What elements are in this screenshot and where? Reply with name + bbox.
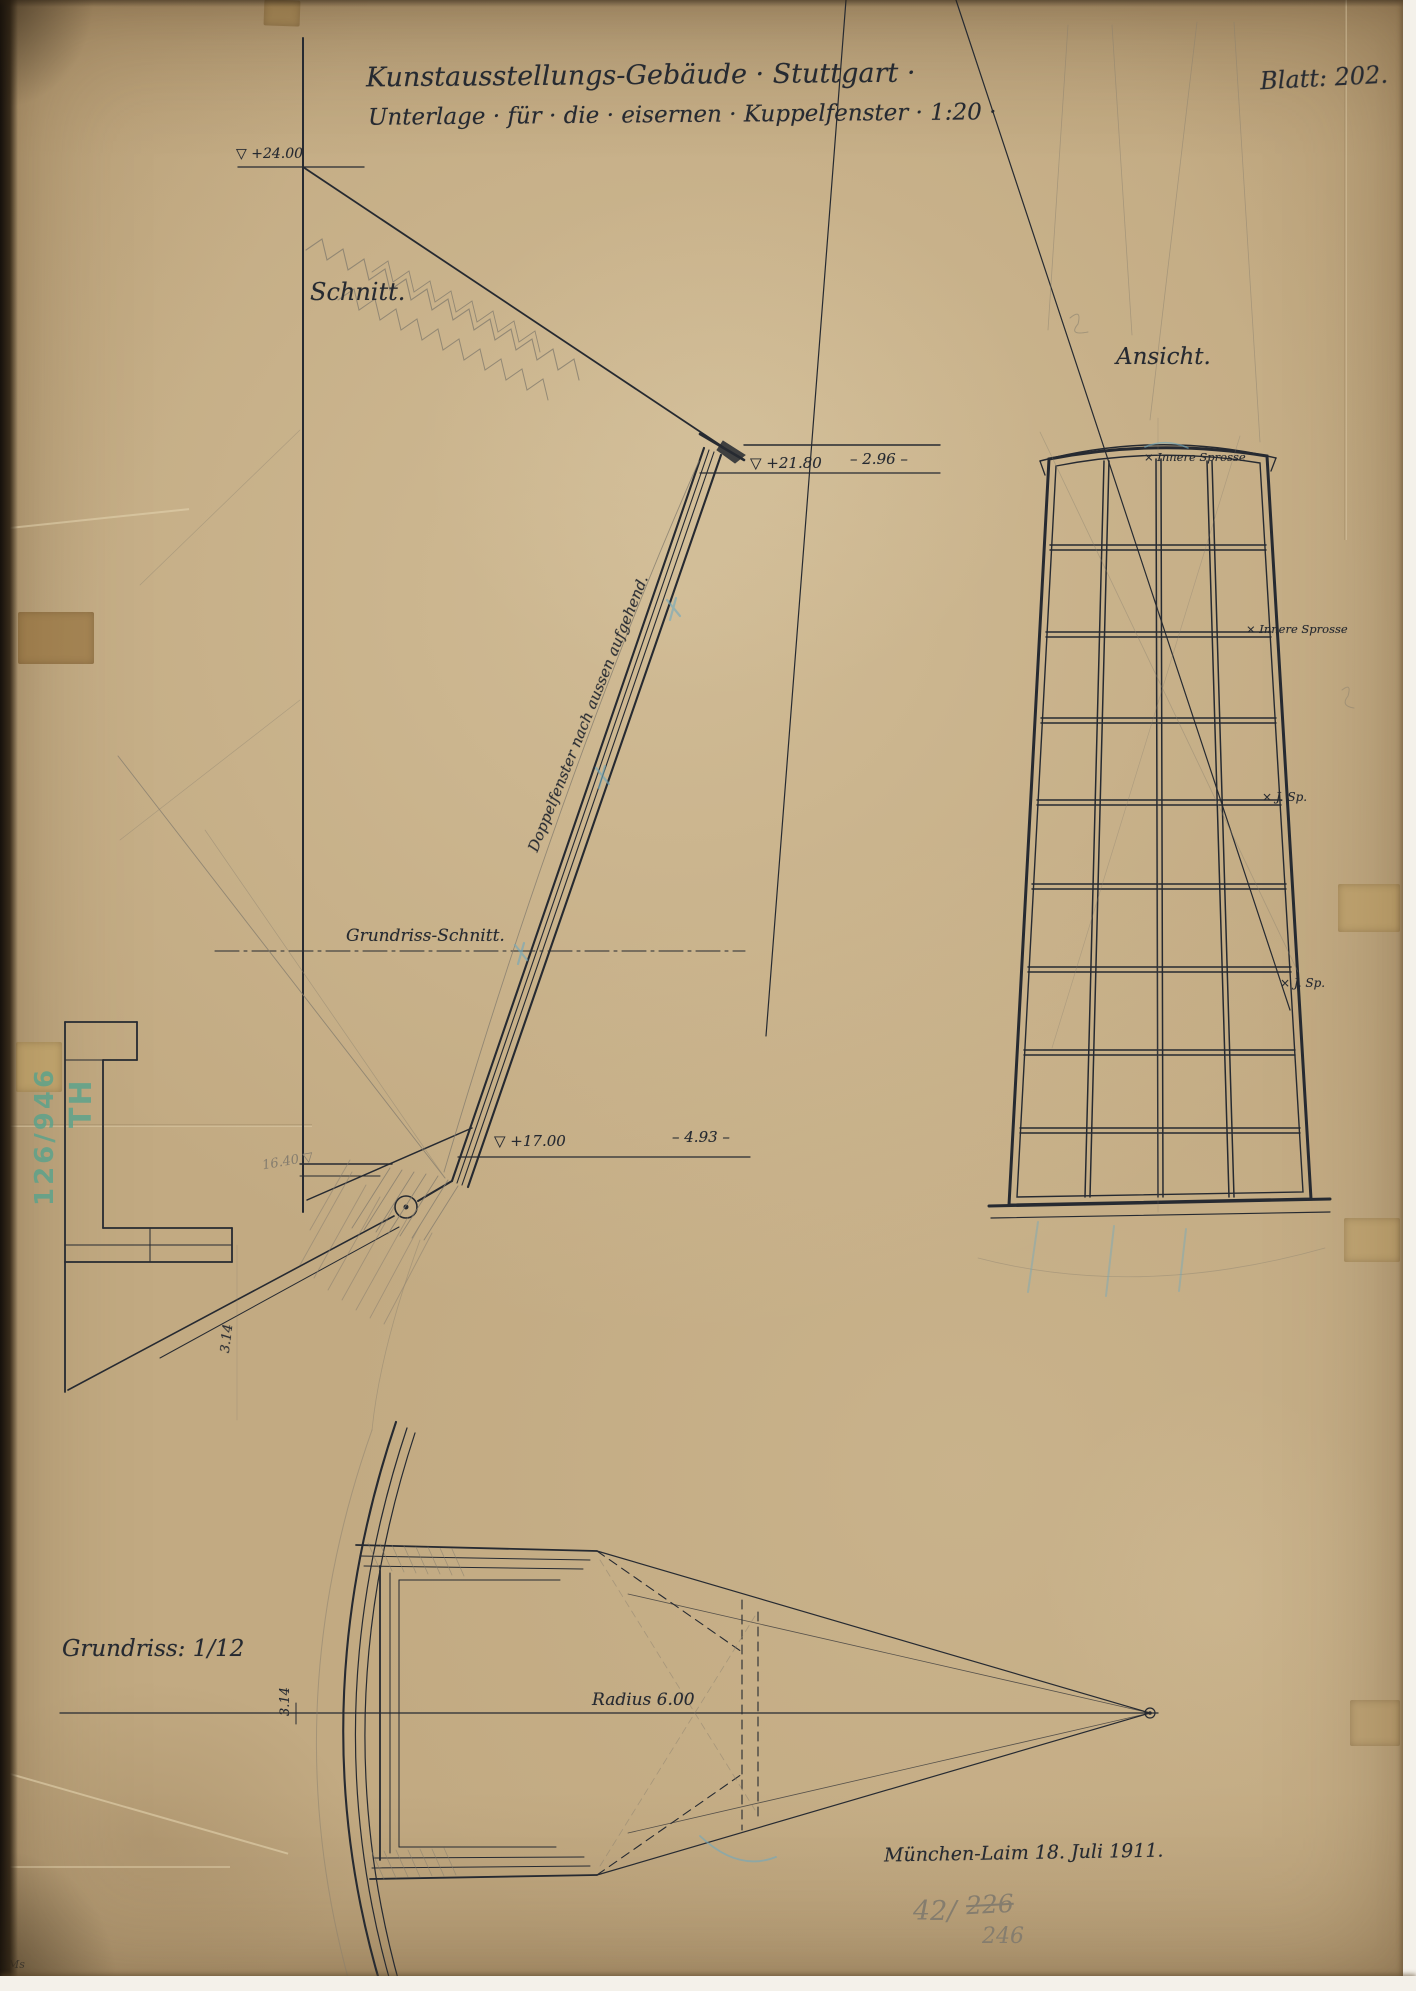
elevation-mark-2180: ▽ +21.80: [750, 454, 822, 472]
sheet-title-line2: Unterlage · für · die · eisernen · Kuppe…: [368, 99, 997, 130]
sheet-title-line1: Kunstausstellungs-Gebäude · Stuttgart ·: [366, 58, 916, 94]
drawing-sheet: Kunstausstellungs-Gebäude · Stuttgart · …: [0, 0, 1416, 1991]
dimension-493: – 4.93 –: [672, 1128, 730, 1146]
elevation-mark-24: ▽ +24.00: [236, 146, 303, 162]
elevation-linework: [766, 0, 1330, 1218]
annotation-jsp-2: × J. Sp.: [1280, 976, 1325, 990]
elevation-mark-1700: ▽ +17.00: [494, 1132, 566, 1150]
paper-corner-shadow-tl: [0, 0, 130, 150]
dimension-314-plan: 3.14: [278, 1687, 293, 1716]
drawing-linework: [0, 0, 1416, 1991]
radius-label: Radius 6.00: [592, 1690, 695, 1710]
paper-torn-left-edge: [0, 0, 18, 1991]
plan-view-label: Grundriss: 1/12: [62, 1636, 244, 1662]
dimension-296: – 2.96 –: [850, 450, 908, 468]
centerline-label: Grundriss-Schnitt.: [346, 926, 505, 946]
scan-margin-right: [1403, 0, 1416, 1991]
section-linework: [65, 38, 940, 1392]
paper-top-edge: [0, 0, 1416, 7]
annotation-innere-sprosse-top: × Innere Sprosse: [1144, 450, 1246, 464]
archive-stamp-number: 126/946: [30, 1067, 60, 1206]
paper-corner-shadow-bl: [0, 1813, 150, 1983]
pencil-ref-prefix: 42/: [913, 1896, 956, 1927]
scan-margin-bottom: [0, 1976, 1416, 1991]
archive-stamp-monogram: TH: [64, 1078, 99, 1128]
elevation-view-label: Ansicht.: [1116, 344, 1211, 370]
pencil-ref-revised: 246: [982, 1924, 1024, 1949]
pencil-ref-struck: 226: [965, 1889, 1014, 1920]
annotation-jsp-1: × J. Sp.: [1262, 790, 1307, 804]
annotation-innere-sprosse-right: × Innere Sprosse: [1246, 622, 1348, 636]
section-label: Schnitt.: [310, 278, 405, 306]
